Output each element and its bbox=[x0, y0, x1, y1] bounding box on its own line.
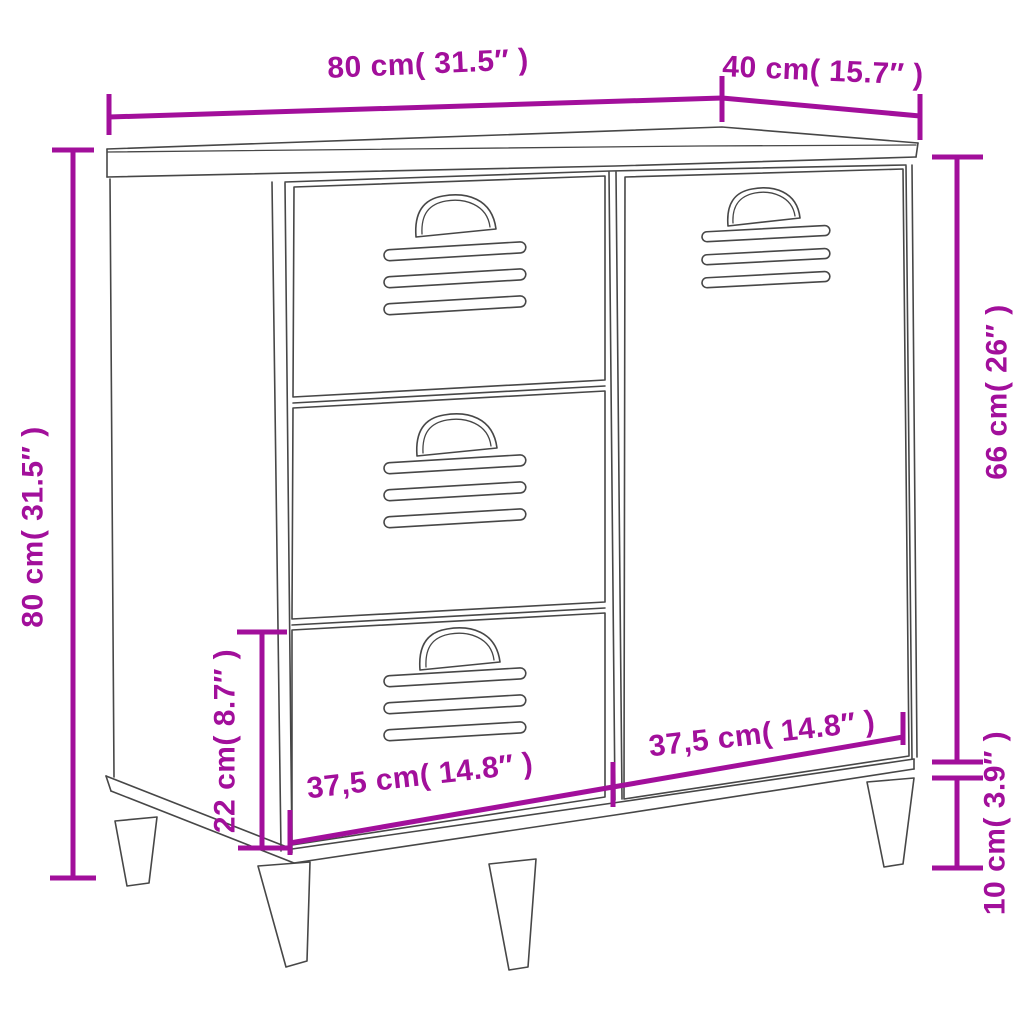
label-overall-height: 80 cm( 31.5″ ) bbox=[17, 426, 50, 627]
dimension-diagram: 80 cm( 31.5″ ) 40 cm( 15.7″ ) 80 cm( 31.… bbox=[0, 0, 1024, 1024]
drawer-2-panel bbox=[292, 391, 605, 619]
label-right-upper-height: 66 cm( 26″ ) bbox=[981, 304, 1014, 479]
drawer-1-handle-inner bbox=[422, 200, 490, 234]
label-leg-height: 10 cm( 3.9″ ) bbox=[979, 731, 1012, 915]
center-divider-right bbox=[616, 172, 622, 799]
left-front-edge-inner bbox=[285, 183, 292, 853]
door-handle-inner bbox=[733, 192, 795, 223]
base-rail-left-bottom bbox=[111, 791, 294, 863]
leg-front-left bbox=[258, 862, 310, 967]
vent-slot bbox=[384, 296, 526, 315]
left-front-edge-outer bbox=[272, 182, 281, 851]
body-top-edge bbox=[285, 165, 906, 182]
right-edge-outer bbox=[912, 165, 917, 757]
vent-slot bbox=[384, 722, 526, 741]
vent-slot bbox=[702, 225, 830, 242]
leg-front-middle bbox=[489, 859, 536, 970]
cabinet bbox=[106, 127, 918, 970]
drawer-1-handle bbox=[416, 195, 496, 237]
dim-overall-height bbox=[50, 150, 96, 878]
drawer-3-handle-inner bbox=[426, 633, 494, 667]
drawer-2-handle bbox=[417, 414, 497, 456]
drawer-1 bbox=[293, 176, 605, 403]
vent-slot bbox=[384, 455, 526, 474]
drawer-3-handle bbox=[420, 628, 500, 670]
top-panel-back-edge bbox=[107, 145, 916, 152]
drawer-2-handle-inner bbox=[423, 419, 491, 453]
door-panel bbox=[624, 169, 909, 799]
dim-leg-height bbox=[932, 778, 983, 868]
vent-slot bbox=[384, 668, 526, 687]
vent-slot bbox=[384, 482, 526, 501]
vent-slot bbox=[384, 269, 526, 288]
vent-slot bbox=[702, 271, 830, 288]
label-bottom-left-width: 37,5 cm( 14.8″ ) bbox=[305, 747, 535, 806]
label-lower-left-height: 22 cm( 8.7″ ) bbox=[209, 649, 242, 833]
label-top-width: 80 cm( 31.5″ ) bbox=[327, 43, 530, 85]
drawer-2 bbox=[292, 391, 605, 625]
vent-slot bbox=[384, 242, 526, 261]
dim-top-depth bbox=[722, 94, 920, 140]
dim-top-width bbox=[109, 76, 722, 135]
drawer-1-panel bbox=[293, 176, 605, 397]
right-edge-inner bbox=[906, 166, 912, 759]
door-handle bbox=[728, 188, 800, 226]
label-top-depth: 40 cm( 15.7″ ) bbox=[722, 50, 925, 92]
vent-slot bbox=[384, 509, 526, 528]
center-divider-left bbox=[609, 172, 615, 800]
cabinet-top-panel bbox=[107, 127, 918, 177]
dim-right-upper-height bbox=[932, 157, 983, 762]
leg-back-left bbox=[115, 817, 157, 886]
door bbox=[624, 169, 909, 799]
leg-front-right bbox=[867, 778, 914, 867]
vent-slot bbox=[384, 695, 526, 714]
vent-slot bbox=[702, 248, 830, 265]
left-back-edge bbox=[110, 179, 114, 777]
sideboard-diagram-canvas: 80 cm( 31.5″ ) 40 cm( 15.7″ ) 80 cm( 31.… bbox=[0, 0, 1024, 1024]
label-bottom-right-width: 37,5 cm( 14.8″ ) bbox=[647, 705, 877, 764]
